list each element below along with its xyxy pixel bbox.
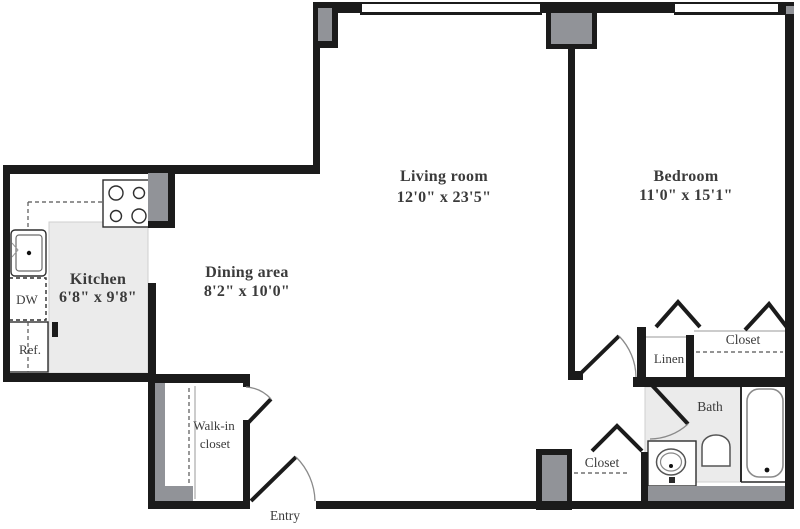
wall-fill (155, 486, 193, 501)
sink-fitting (669, 477, 675, 483)
dining-area-dims: 8'2" x 10'0" (204, 283, 290, 300)
column (148, 173, 168, 221)
living-room-label: Living room (400, 168, 488, 185)
dishwasher-label: DW (16, 292, 38, 307)
wall-right (785, 2, 794, 509)
kitchen-label: Kitchen (70, 271, 126, 288)
bedroom-label: Bedroom (654, 168, 719, 185)
bedroom-door-leaf (577, 336, 619, 377)
toilet (702, 435, 730, 466)
window (674, 12, 786, 15)
wall-bedroom-west (568, 44, 575, 380)
wall-kitchen-south (3, 373, 155, 382)
wall-linen-west (637, 327, 646, 383)
stove-burner-icon (109, 186, 123, 200)
entry-label: Entry (270, 508, 300, 523)
wall-walkin-north (148, 374, 250, 383)
wall-fill (155, 383, 165, 501)
wall-door-jamb (243, 374, 250, 387)
hall-closet-bifold-icon (592, 426, 642, 451)
hall-closet-label: Closet (585, 455, 620, 470)
walkin-closet-label-line2: closet (200, 436, 231, 451)
wall-left (3, 165, 10, 382)
linen-label: Linen (654, 351, 685, 366)
wall-fill (786, 6, 794, 14)
bedroom-closet-label: Closet (726, 332, 761, 347)
vanity-sink-basin (661, 453, 682, 471)
tub-drain-icon (765, 468, 770, 473)
wall-hall-closet-east (641, 452, 648, 505)
bedroom-door-arc (619, 336, 636, 377)
wall-walkin-west (148, 374, 155, 509)
wall-bottom (148, 501, 250, 509)
bath-label: Bath (697, 399, 723, 414)
refrigerator-label: Ref. (19, 342, 41, 357)
column (318, 8, 332, 41)
entry-door-arc (296, 457, 315, 501)
wall-linen-east (686, 335, 694, 383)
wall-kitchen-north (3, 165, 320, 174)
sink-drain-icon (669, 464, 673, 468)
stove-burner-icon (134, 188, 145, 199)
wall-fill (648, 486, 785, 501)
kitchen-dims: 6'8" x 9'8" (59, 289, 137, 306)
stove-burner-icon (111, 211, 122, 222)
walkin-closet-label-line1: Walk-in (193, 418, 235, 433)
wall-kitchen-east (148, 283, 156, 378)
linen-bifold-icon (656, 302, 700, 327)
sink-drain-icon (27, 251, 31, 255)
stove-burner-icon (132, 209, 146, 223)
wall-walkin-east (243, 420, 250, 505)
wall-stub (52, 322, 58, 337)
column (551, 13, 592, 44)
window (674, 2, 786, 4)
walkin-door-arc (246, 387, 271, 399)
floor-plan: Living room 12'0" x 23'5" Bedroom 11'0" … (0, 0, 800, 529)
column (542, 455, 567, 501)
walkin-door-leaf (247, 399, 271, 424)
bathtub (747, 389, 783, 477)
dining-area-label: Dining area (205, 264, 288, 281)
bedroom-dims: 11'0" x 15'1" (639, 187, 733, 204)
entry-door-leaf (251, 457, 296, 501)
window (360, 2, 542, 4)
floor-plan-canvas: Living room 12'0" x 23'5" Bedroom 11'0" … (0, 0, 800, 529)
closet-bifold-icon (745, 304, 789, 330)
living-room-dims: 12'0" x 23'5" (397, 189, 492, 206)
window (360, 12, 542, 15)
wall-bath-north (633, 377, 794, 387)
